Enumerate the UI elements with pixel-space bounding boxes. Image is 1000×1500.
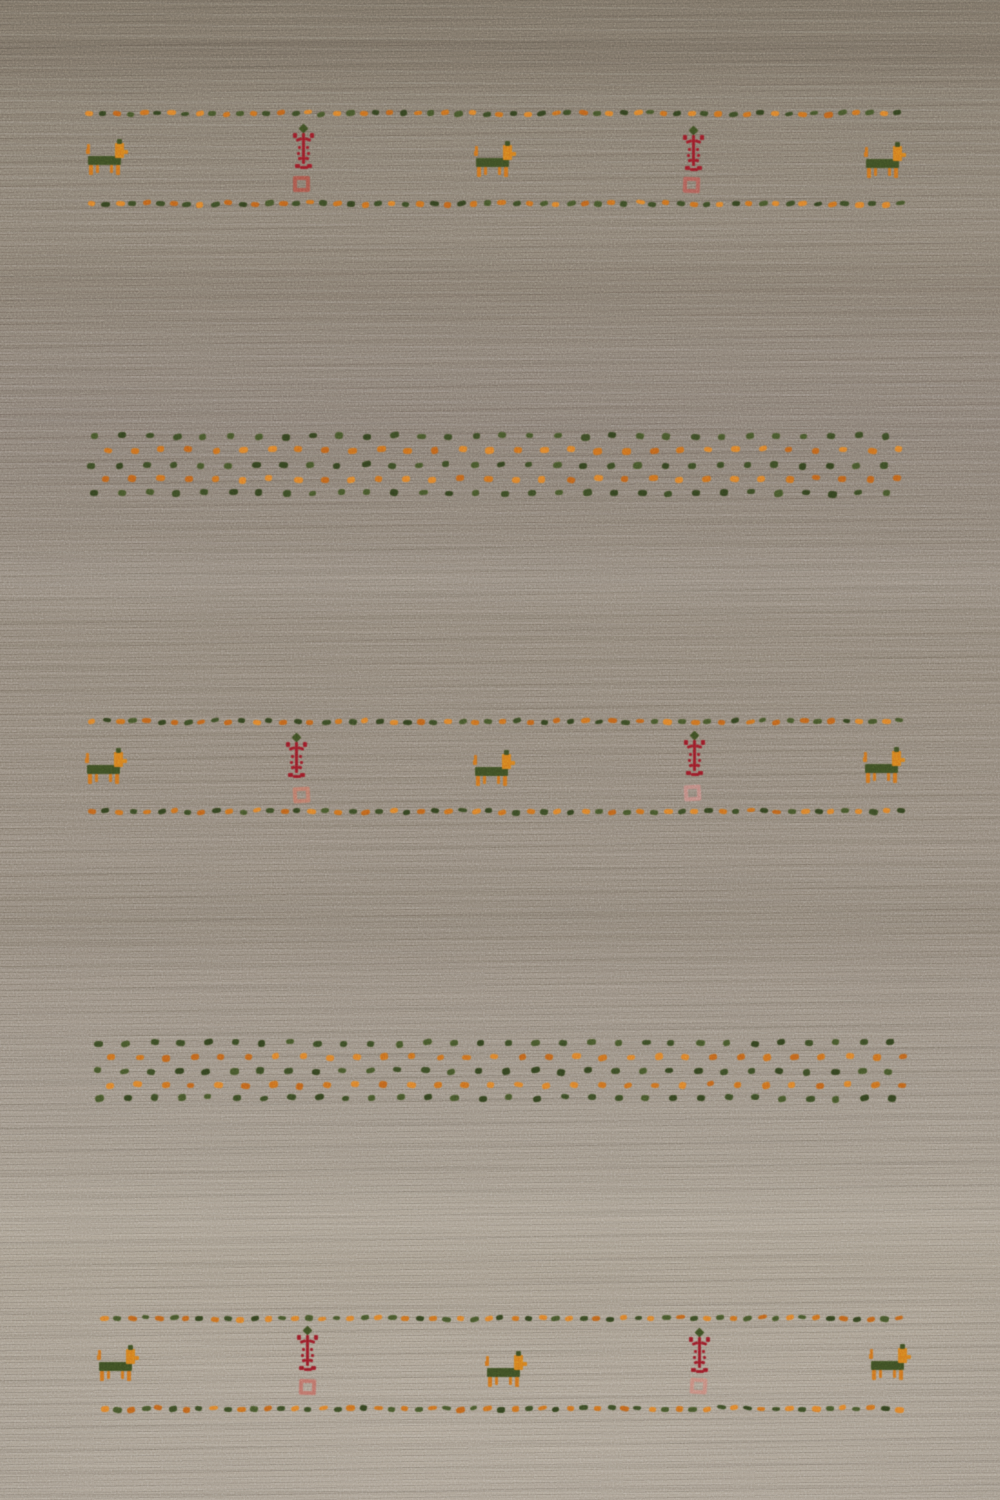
guard-line-dot xyxy=(265,1315,273,1321)
scatter-dot xyxy=(201,1068,211,1075)
scatter-dot xyxy=(676,446,685,453)
tree-motif xyxy=(687,1328,713,1374)
scatter-dot xyxy=(627,1055,635,1061)
guard-line-dot xyxy=(635,200,645,206)
scatter-dot xyxy=(860,1039,869,1045)
guard-line-dot xyxy=(417,718,426,724)
tree-bud xyxy=(697,753,700,756)
guard-line-dot xyxy=(581,718,590,723)
scatter-dot xyxy=(450,1094,459,1100)
animal-tail xyxy=(86,149,90,154)
animal-leg xyxy=(110,165,113,173)
guard-line-dot xyxy=(772,809,781,814)
scatter-dot xyxy=(379,1080,388,1088)
scatter-dot xyxy=(177,1094,186,1101)
guard-line-dot xyxy=(441,1405,450,1411)
animal-motif xyxy=(474,140,518,178)
guard-line-dot xyxy=(869,809,879,816)
scatter-dot xyxy=(239,477,247,484)
scatter-dot xyxy=(245,1054,253,1061)
scatter-dot xyxy=(718,433,726,439)
tree-branch xyxy=(701,1361,706,1365)
guard-line-dot xyxy=(88,718,96,725)
scatter-dot xyxy=(582,489,592,497)
guard-line-dot xyxy=(498,809,507,815)
guard-line-dot xyxy=(784,111,793,117)
guard-line-dot xyxy=(636,809,645,816)
guard-line-dot xyxy=(852,1407,860,1412)
animal-ear xyxy=(895,142,900,147)
scatter-dot xyxy=(649,447,658,454)
guard-line-dot xyxy=(880,1315,889,1322)
guard-line-dot xyxy=(663,718,673,725)
animal-snout xyxy=(134,1356,139,1360)
guard-line-dot xyxy=(633,1406,641,1411)
scatter-dot xyxy=(748,1068,755,1074)
scatter-dot xyxy=(231,1039,239,1046)
guard-line-dot xyxy=(416,201,425,208)
scatter-dot xyxy=(408,1053,416,1060)
scatter-dot xyxy=(227,432,235,439)
guard-line-dot xyxy=(223,111,231,118)
guard-line-dot xyxy=(130,808,138,814)
guard-line-dot xyxy=(181,1315,189,1321)
guard-line-dot xyxy=(551,1315,560,1321)
guard-line-dot xyxy=(427,110,435,116)
guard-line-dot xyxy=(893,110,901,116)
scatter-dot xyxy=(187,1083,195,1089)
scatter-dot xyxy=(736,1053,745,1060)
guard-line-dot xyxy=(771,1315,779,1321)
animal-leg xyxy=(872,1370,876,1380)
guard-line-dot xyxy=(690,201,699,207)
guard-line-dot xyxy=(594,1406,601,1412)
scatter-dot xyxy=(702,475,711,482)
guard-line-dot xyxy=(553,808,562,815)
scatter-dot xyxy=(157,446,165,452)
guard-line-dot xyxy=(157,719,166,725)
scatter-dot xyxy=(533,1095,542,1102)
guard-line-dot xyxy=(512,718,521,724)
scatter-dot xyxy=(212,476,220,483)
guard-line-dot xyxy=(142,718,151,723)
guard-line-dot xyxy=(469,110,477,116)
tree-bud xyxy=(290,761,293,764)
guard-line-dot xyxy=(730,1315,738,1320)
animal-motif xyxy=(869,1343,913,1381)
guard-line-dot xyxy=(880,111,889,117)
scatter-dot xyxy=(374,475,382,482)
guard-line-dot xyxy=(346,1315,355,1321)
guard-line-dot xyxy=(717,720,725,726)
guard-line-dot xyxy=(673,110,682,116)
guard-line-dot xyxy=(390,719,398,724)
guard-line-dot xyxy=(607,809,616,815)
guard-line-dot xyxy=(346,110,355,116)
guard-line-dot xyxy=(537,1405,547,1411)
guard-line-dot xyxy=(540,719,548,725)
guard-line-dot xyxy=(361,1315,369,1320)
guard-line-dot xyxy=(483,111,491,117)
guard-line-dot xyxy=(252,719,261,726)
scatter-dot xyxy=(744,462,752,468)
animal-leg xyxy=(115,774,119,784)
guard-line-dot xyxy=(457,1315,465,1321)
guard-line-dot xyxy=(772,1407,781,1412)
guard-line-dot xyxy=(690,808,698,814)
scatter-dot xyxy=(778,1095,787,1102)
guard-line-dot xyxy=(224,719,232,725)
scatter-dot xyxy=(255,489,262,496)
scatter-dot xyxy=(803,1068,811,1075)
guard-line-dot xyxy=(827,717,836,724)
guard-line-dot xyxy=(183,1406,191,1413)
scatter-dot xyxy=(638,490,647,496)
scatter-dot xyxy=(525,462,532,468)
guard-line-dot xyxy=(101,1406,109,1412)
guard-line-dot xyxy=(251,202,260,208)
guard-line-dot xyxy=(743,1405,753,1411)
tree-bud xyxy=(298,146,301,149)
scatter-dot xyxy=(91,433,99,439)
animal-motif xyxy=(485,1350,529,1388)
animal-leg xyxy=(483,776,486,784)
animal-tail xyxy=(863,757,867,762)
guard-line-dot xyxy=(798,201,807,207)
guard-line-dot xyxy=(553,717,561,723)
scatter-dot xyxy=(593,475,602,482)
guard-line-dot xyxy=(810,111,818,116)
guard-line-dot xyxy=(430,200,439,206)
guard-line-dot xyxy=(770,111,778,117)
guard-line-dot xyxy=(182,201,191,207)
tree-bud xyxy=(302,1348,305,1351)
guard-line-dot xyxy=(785,1314,794,1321)
tree-branch xyxy=(696,764,701,768)
scatter-dot xyxy=(724,1094,733,1101)
scatter-dot xyxy=(708,1053,717,1060)
guard-line-dot xyxy=(100,1316,109,1321)
guard-line-dot xyxy=(154,1316,164,1323)
guard-line-dot xyxy=(197,719,206,725)
guard-line-dot xyxy=(499,719,506,724)
guard-line-dot xyxy=(399,109,407,116)
guard-line-dot xyxy=(895,717,903,723)
guard-line-dot xyxy=(374,1406,383,1411)
guard-line-dot xyxy=(224,1315,233,1322)
scatter-dot xyxy=(348,448,357,454)
scatter-dot xyxy=(788,1082,796,1088)
scatter-dot xyxy=(123,1095,132,1102)
scatter-dot xyxy=(528,490,537,496)
animal-leg xyxy=(100,1371,104,1381)
guard-line-dot xyxy=(688,1407,697,1412)
scatter-dot xyxy=(649,475,658,481)
guard-line-dot xyxy=(497,1407,505,1413)
guard-line-dot xyxy=(362,201,370,208)
guard-line-dot xyxy=(372,110,380,116)
guard-line-dot xyxy=(294,718,303,725)
scatter-dot xyxy=(771,432,780,438)
scatter-dot xyxy=(433,1081,442,1087)
guard-line-dot xyxy=(855,202,864,208)
guard-line-dot xyxy=(195,1315,203,1320)
scatter-dot xyxy=(854,490,863,496)
scatter-dot xyxy=(217,1053,225,1060)
scatter-dot xyxy=(731,446,740,452)
guard-line-dot xyxy=(786,717,794,723)
scatter-dot xyxy=(756,475,765,482)
scatter-dot xyxy=(402,475,410,481)
scatter-dot xyxy=(390,488,399,496)
guard-line-dot xyxy=(662,1315,671,1320)
guard-line-dot xyxy=(866,1316,875,1322)
scatter-dot xyxy=(651,1082,660,1088)
guard-line-dot xyxy=(661,1407,669,1412)
guard-line-dot xyxy=(388,1315,397,1320)
guard-line-dot xyxy=(595,809,604,814)
scatter-dot xyxy=(888,1094,897,1102)
tree-bud xyxy=(697,154,700,157)
scatter-dot xyxy=(811,474,820,481)
scatter-dot xyxy=(150,1038,158,1045)
scatter-dot xyxy=(638,1067,647,1075)
scatter-dot xyxy=(479,1096,487,1102)
scatter-dot xyxy=(363,433,372,439)
guard-line-dot xyxy=(580,1316,588,1321)
guard-line-dot xyxy=(181,112,190,117)
guard-line-dot xyxy=(525,1315,533,1321)
scatter-dot xyxy=(751,1040,760,1047)
tree-cap xyxy=(292,733,302,743)
guard-line-dot xyxy=(484,200,492,206)
scatter-dot xyxy=(103,447,112,454)
scatter-dot xyxy=(390,432,400,439)
guard-line-dot xyxy=(416,1315,425,1321)
scatter-dot xyxy=(143,462,152,469)
guard-line-dot xyxy=(127,1315,137,1322)
guard-line-dot xyxy=(116,719,125,725)
scatter-dot xyxy=(254,433,263,441)
tree-branch-tip xyxy=(684,740,688,745)
scatter-dot xyxy=(161,1082,169,1088)
scatter-dot xyxy=(397,1094,406,1100)
animal-leg xyxy=(488,1377,492,1387)
scatter-dot xyxy=(204,1039,214,1047)
animal-leg xyxy=(497,776,500,784)
guard-line-dot xyxy=(841,808,849,814)
scatter-dot xyxy=(761,1081,771,1089)
tree-base xyxy=(293,775,301,778)
scatter-dot xyxy=(899,1053,907,1059)
scatter-dot xyxy=(620,476,628,483)
scatter-dot xyxy=(816,1083,824,1089)
scatter-dot xyxy=(694,1068,703,1074)
guard-line-dot xyxy=(524,111,533,117)
guard-line-dot xyxy=(142,1406,151,1412)
guard-line-dot xyxy=(143,810,151,815)
scatter-dot xyxy=(449,1039,458,1045)
guard-line-dot xyxy=(237,718,245,724)
scatter-dot xyxy=(229,489,238,496)
scatter-dot xyxy=(299,1053,306,1059)
animal-ear xyxy=(117,139,122,144)
scatter-dot xyxy=(283,489,291,496)
scatter-dot xyxy=(107,1054,115,1060)
scatter-dot xyxy=(812,447,820,454)
scatter-dot xyxy=(624,1082,633,1089)
guard-line-dot xyxy=(894,1315,902,1321)
guard-line-dot xyxy=(649,1406,657,1412)
animal-motif xyxy=(85,747,129,785)
scatter-dot xyxy=(662,432,671,440)
square-motif xyxy=(293,176,310,192)
guard-line-dot xyxy=(115,200,124,206)
animal-tail xyxy=(97,1355,101,1360)
guard-line-dot xyxy=(169,200,178,206)
guard-line-dot xyxy=(429,719,438,726)
scatter-dot xyxy=(816,1053,825,1061)
animal-snout xyxy=(900,758,905,762)
guard-line-dot xyxy=(620,1315,628,1321)
scatter-dot xyxy=(883,1068,892,1076)
tree-bud xyxy=(311,1354,314,1357)
tree-branch-tip xyxy=(683,135,687,140)
scatter-dot xyxy=(615,1095,623,1101)
scatter-dot xyxy=(839,446,847,452)
scatter-dot xyxy=(717,462,724,468)
scatter-dot xyxy=(230,1068,239,1075)
scatter-dot xyxy=(321,476,330,482)
guard-line-dot xyxy=(745,200,753,207)
guard-line-dot xyxy=(171,719,179,725)
guard-line-dot xyxy=(444,719,452,724)
guard-line-dot xyxy=(281,809,290,815)
guard-line-dot xyxy=(664,808,673,813)
scatter-dot xyxy=(293,445,302,452)
scatter-dot xyxy=(335,432,344,440)
guard-line-dot xyxy=(290,1405,299,1411)
guard-line-dot xyxy=(605,111,613,117)
guard-line-dot xyxy=(635,1316,642,1320)
scatter-dot xyxy=(268,446,277,453)
tree-branch xyxy=(695,159,700,163)
scatter-dot xyxy=(377,446,386,452)
scatter-dot xyxy=(296,1082,304,1090)
scatter-dot xyxy=(611,1067,620,1074)
guard-line-dot xyxy=(579,109,589,116)
animal-leg xyxy=(89,165,93,175)
guard-line-dot xyxy=(646,110,654,114)
scatter-dot xyxy=(321,447,329,454)
scatter-dot xyxy=(538,476,545,483)
guard-line-dot xyxy=(346,200,354,206)
guard-line-dot xyxy=(743,1315,753,1322)
guard-line-dot xyxy=(184,809,192,815)
guard-line-dot xyxy=(157,808,166,814)
animal-tail xyxy=(485,1361,489,1366)
scatter-dot xyxy=(346,476,354,483)
scatter-dot xyxy=(531,1040,540,1047)
guard-line-dot xyxy=(552,1406,560,1412)
animal-leg xyxy=(95,774,98,782)
guard-line-dot xyxy=(417,809,425,814)
scatter-dot xyxy=(608,432,617,439)
animal-ear xyxy=(900,1344,905,1349)
scatter-dot xyxy=(805,1039,814,1046)
tree-bud xyxy=(694,1350,697,1353)
guard-line-dot xyxy=(567,200,576,207)
guard-line-dot xyxy=(785,1405,794,1411)
guard-line-dot xyxy=(825,1405,833,1411)
tree-cap xyxy=(689,126,699,136)
animal-leg xyxy=(107,1371,110,1379)
guard-line-dot xyxy=(814,808,823,814)
animal-snout xyxy=(511,152,516,156)
scatter-dot xyxy=(498,431,507,439)
guard-line-dot xyxy=(415,1407,423,1413)
animal-leg xyxy=(866,773,870,783)
tree-bud xyxy=(687,154,690,157)
scatter-dot xyxy=(475,1068,483,1074)
guard-line-dot xyxy=(168,1405,176,1412)
guard-line-dot xyxy=(376,718,384,723)
animal-leg xyxy=(504,167,508,177)
scatter-dot xyxy=(581,433,590,440)
guard-line-dot xyxy=(714,111,722,117)
scatter-dot xyxy=(279,462,288,469)
guard-line-dot xyxy=(265,717,273,723)
guard-line-dot xyxy=(292,201,300,206)
scatter-dot xyxy=(680,1053,689,1061)
scatter-dot xyxy=(172,490,181,497)
guard-line-dot xyxy=(824,111,833,118)
scatter-dot xyxy=(145,433,153,438)
tree-bud xyxy=(688,148,691,151)
guard-line-dot xyxy=(429,1316,437,1321)
guard-line-dot xyxy=(390,808,399,814)
guard-line-dot xyxy=(759,807,768,814)
scatter-dot xyxy=(667,1040,675,1047)
guard-line-dot xyxy=(210,1316,218,1322)
scatter-dot xyxy=(444,434,452,441)
guard-line-dot xyxy=(813,718,822,724)
animal-ear xyxy=(505,141,510,146)
guard-line-dot xyxy=(428,1406,437,1411)
scatter-dot xyxy=(633,461,642,468)
scatter-dot xyxy=(380,1053,389,1061)
tree-bud xyxy=(307,152,310,155)
scatter-dot xyxy=(387,462,396,469)
scatter-dot xyxy=(351,1081,359,1088)
scatter-dot xyxy=(635,432,644,439)
scatter-dot xyxy=(446,1068,455,1076)
guard-line-dot xyxy=(511,1315,519,1320)
scatter-dot xyxy=(688,463,696,469)
guard-line-dot xyxy=(431,808,439,814)
animal-leg xyxy=(888,168,891,176)
guard-line-dot xyxy=(225,809,233,815)
scatter-dot xyxy=(867,476,876,484)
scatter-dot xyxy=(719,489,728,497)
guard-line-dot xyxy=(211,808,220,814)
guard-line-dot xyxy=(484,1315,493,1322)
guard-line-dot xyxy=(470,1405,478,1411)
scatter-dot xyxy=(333,463,340,469)
scatter-dot xyxy=(306,461,314,467)
scatter-dot xyxy=(622,447,631,454)
guard-line-dot xyxy=(842,718,850,724)
